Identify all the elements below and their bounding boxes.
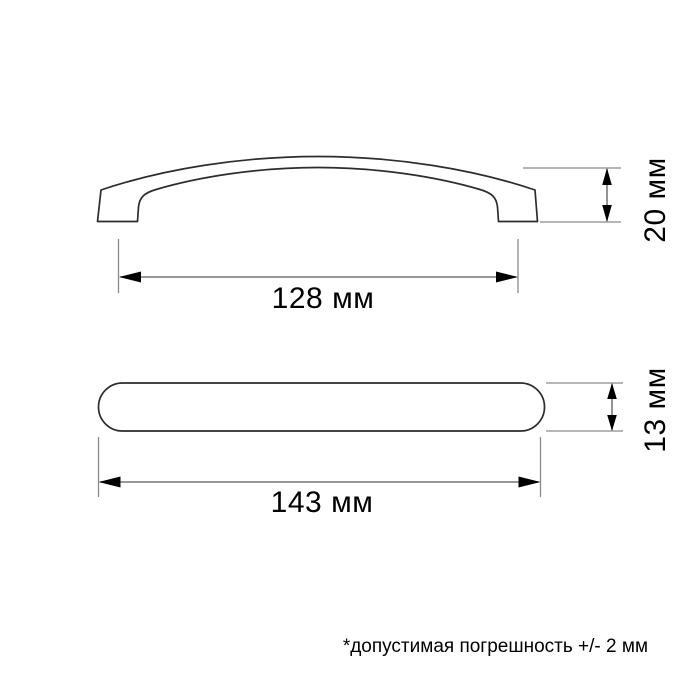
- dim-arrow-down: [602, 205, 612, 222]
- front-view: [98, 157, 622, 294]
- dim-arrow-down: [607, 415, 617, 431]
- dim-label-top-length: 143 мм: [271, 488, 374, 518]
- tolerance-footnote: *допустимая погрешность +/- 2 мм: [343, 636, 648, 658]
- top-view: [99, 383, 624, 497]
- dim-arrow-up: [607, 383, 617, 399]
- dim-label-front-length: 128 мм: [272, 284, 375, 314]
- dim-arrow-up: [602, 168, 612, 185]
- handle-top-outline: [99, 383, 545, 431]
- dim-arrow-right: [519, 477, 541, 488]
- handle-front-outline: [98, 157, 538, 222]
- dim-label-front-height: 20 мм: [641, 157, 671, 242]
- technical-drawing: 128 мм 20 мм 143 мм 13 мм *допустимая по…: [0, 0, 700, 700]
- dim-arrow-left: [99, 477, 121, 488]
- dim-arrow-right: [496, 272, 518, 283]
- dim-label-top-height: 13 мм: [641, 367, 671, 452]
- drawing-canvas: [0, 0, 700, 700]
- dim-top-height: [546, 383, 623, 431]
- dim-arrow-left: [119, 272, 141, 283]
